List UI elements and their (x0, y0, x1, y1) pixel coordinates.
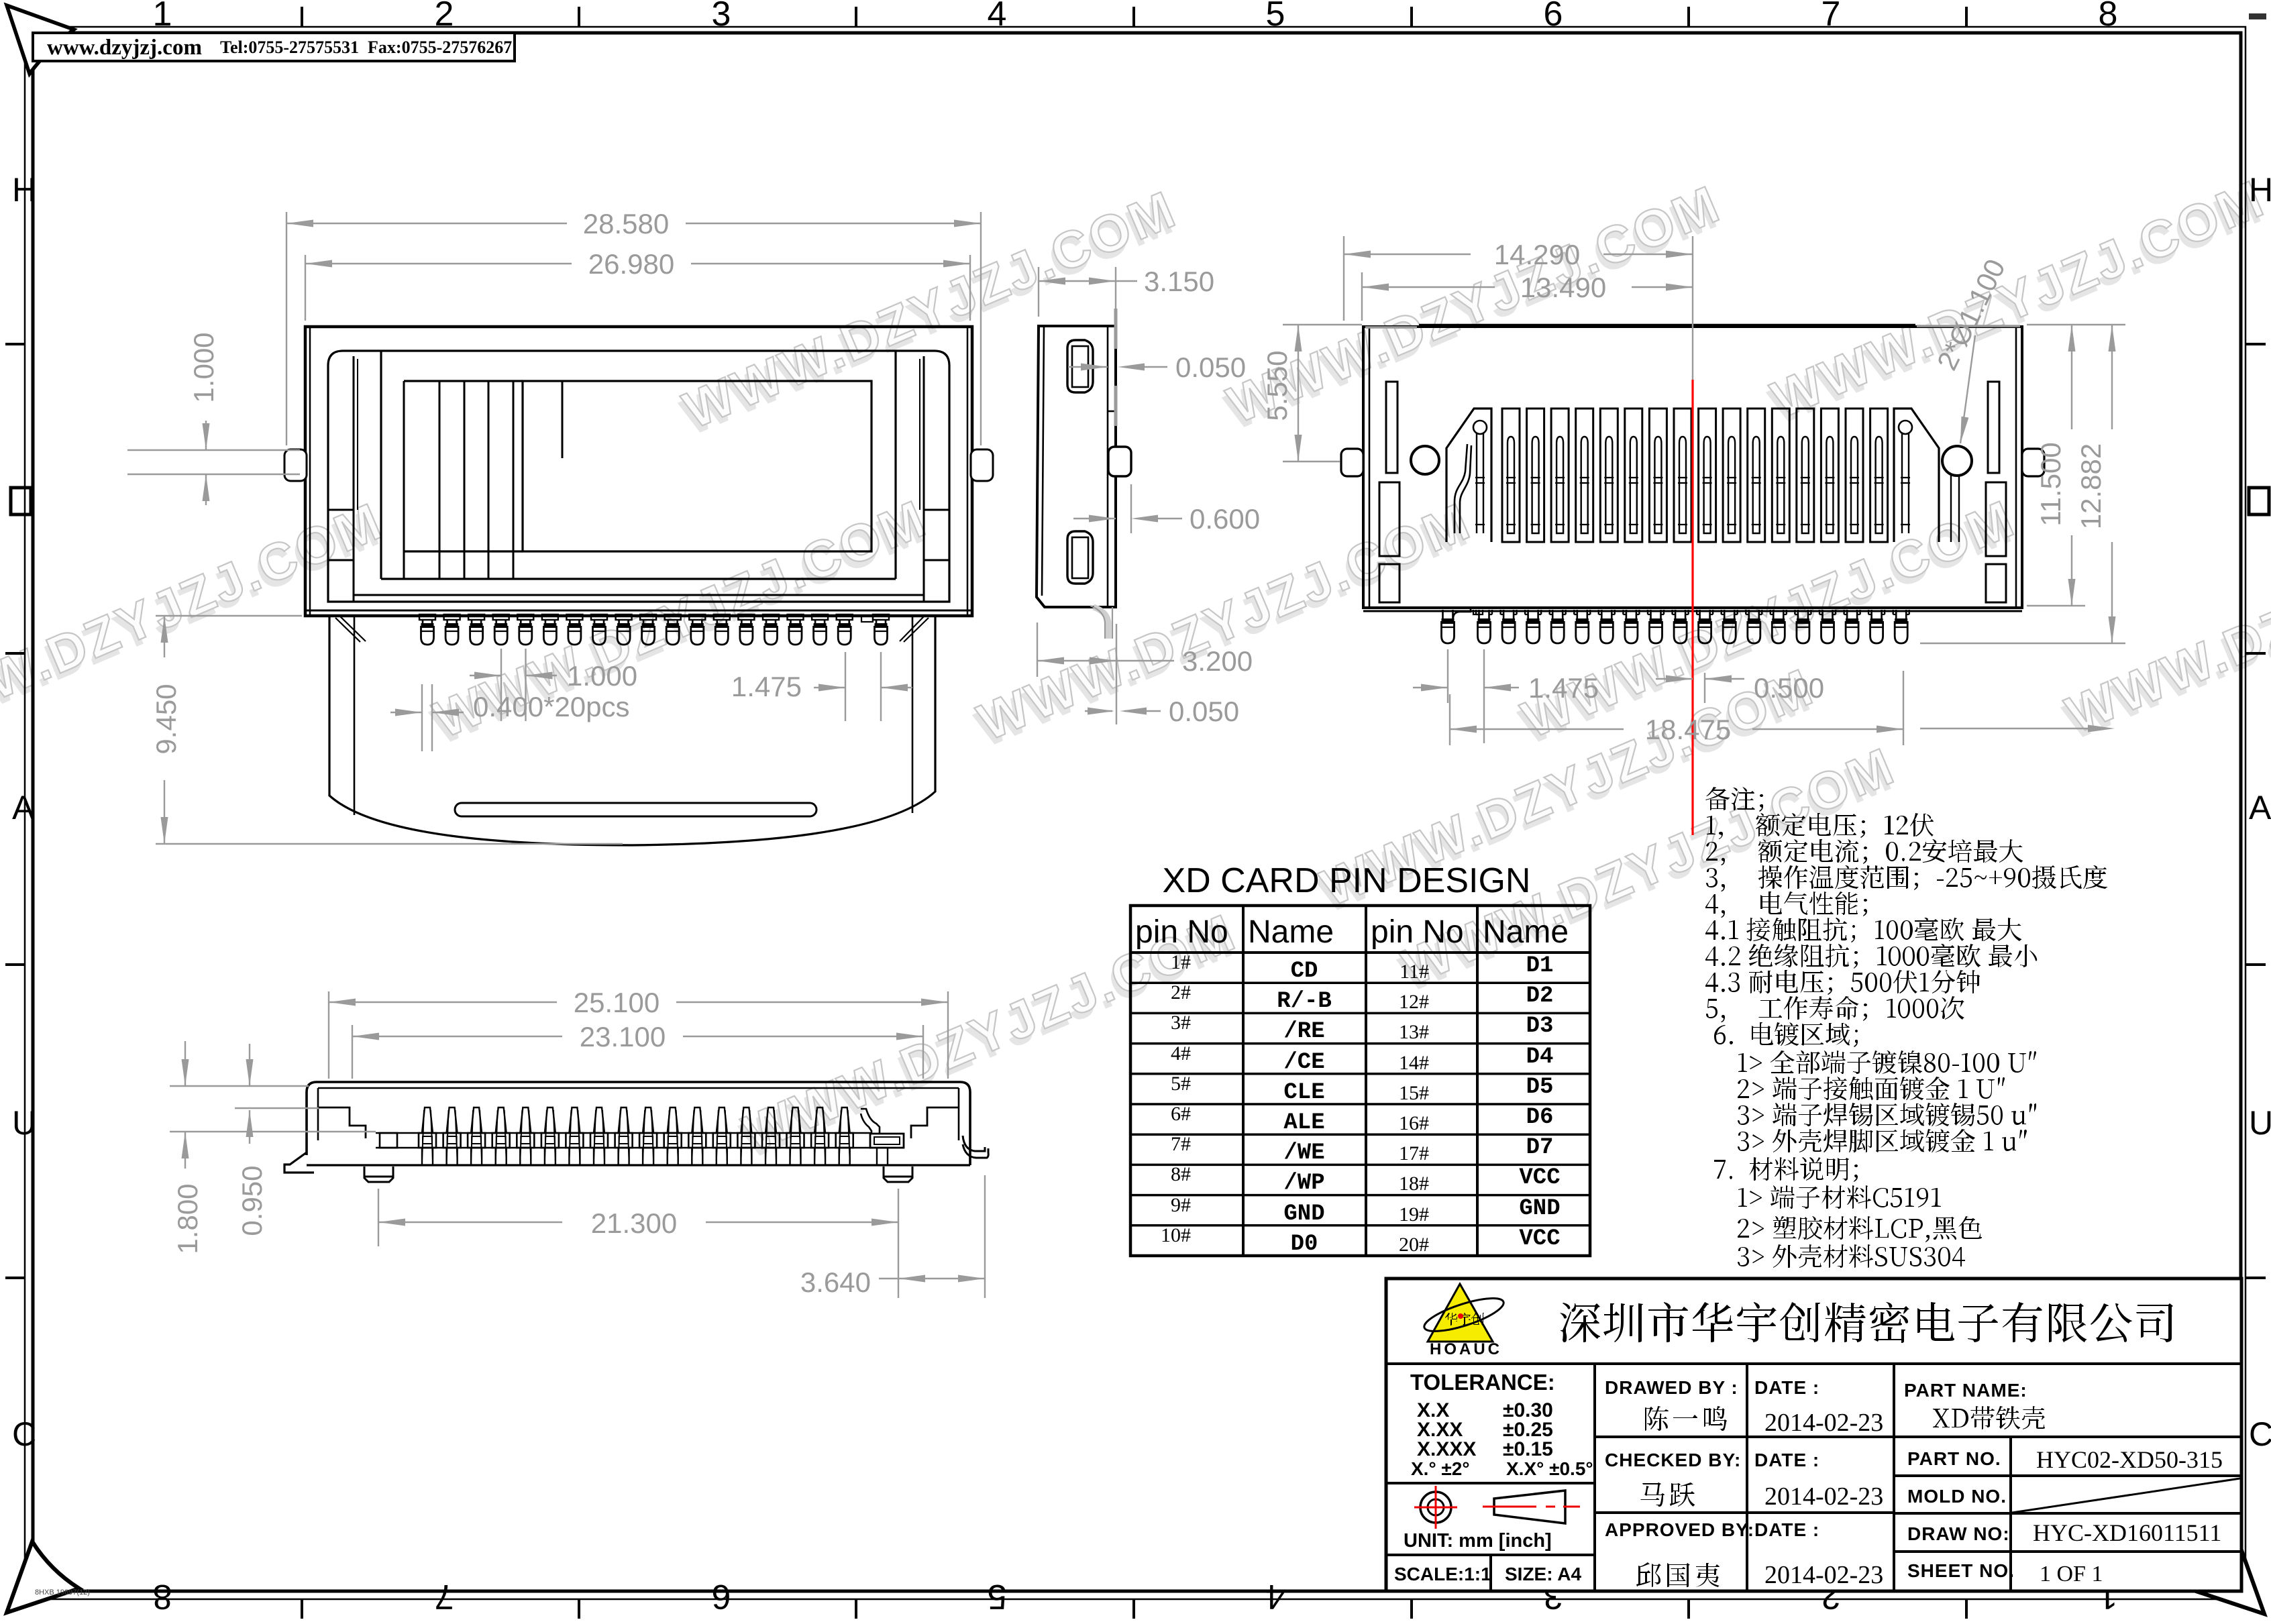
svg-text:3.640: 3.640 (800, 1266, 871, 1298)
svg-text:UNIT: mm [inch]: UNIT: mm [inch] (1404, 1530, 1552, 1552)
svg-text:www.dzyjzj.com: www.dzyjzj.com (47, 36, 202, 60)
svg-text:U: U (2249, 1104, 2271, 1142)
svg-text:APPROVED BY:: APPROVED BY: (1605, 1519, 1754, 1540)
svg-text:23.100: 23.100 (580, 1021, 666, 1052)
svg-text:D7: D7 (1526, 1135, 1554, 1160)
svg-text:7: 7 (1821, 0, 1841, 34)
svg-text:C: C (12, 1415, 36, 1453)
svg-text:1#: 1# (1171, 951, 1191, 973)
svg-text:18#: 18# (1399, 1173, 1429, 1195)
svg-text:2014-02-23: 2014-02-23 (1764, 1482, 1883, 1511)
svg-text:HYC-XD16011511: HYC-XD16011511 (2033, 1519, 2221, 1546)
svg-text:PART NAME:: PART NAME: (1904, 1380, 2027, 1401)
svg-text:2: 2 (435, 0, 454, 34)
svg-text:D6: D6 (1526, 1105, 1554, 1130)
svg-text:0.500: 0.500 (1754, 672, 1824, 704)
svg-text:A: A (2249, 789, 2271, 826)
svg-text:D0: D0 (1291, 1232, 1318, 1257)
svg-text:GND: GND (1283, 1201, 1324, 1227)
svg-text:GND: GND (1519, 1196, 1560, 1222)
svg-text:U: U (12, 1104, 36, 1142)
svg-text:10#: 10# (1161, 1224, 1191, 1246)
svg-text:DATE :: DATE : (1754, 1377, 1819, 1398)
svg-text:PART NO.: PART NO. (1907, 1448, 2001, 1469)
svg-text:TOLERANCE:: TOLERANCE: (1410, 1370, 1555, 1395)
svg-text:8HXB 19897(12): 8HXB 19897(12) (35, 1588, 90, 1596)
svg-text:/WE: /WE (1283, 1140, 1324, 1166)
svg-text:pin No: pin No (1371, 914, 1464, 950)
svg-text:8#: 8# (1171, 1163, 1191, 1185)
svg-text:5: 5 (1266, 0, 1285, 34)
svg-text:25.100: 25.100 (574, 987, 659, 1018)
svg-text:DATE :: DATE : (1754, 1450, 1819, 1470)
svg-text:6: 6 (712, 1577, 731, 1616)
svg-text:C: C (2249, 1415, 2271, 1453)
svg-text:21.300: 21.300 (591, 1207, 677, 1239)
svg-text:4: 4 (988, 0, 1007, 34)
svg-text:H: H (2249, 171, 2271, 209)
svg-text:D1: D1 (1526, 953, 1554, 979)
svg-text:ALE: ALE (1283, 1110, 1324, 1136)
svg-text:X.X° ±0.5°: X.X° ±0.5° (1506, 1458, 1593, 1479)
svg-text:12#: 12# (1399, 991, 1429, 1013)
svg-text:pin No: pin No (1135, 914, 1228, 950)
svg-text:17#: 17# (1399, 1142, 1429, 1165)
svg-text:13#: 13# (1399, 1021, 1429, 1043)
svg-text:6: 6 (1544, 0, 1563, 34)
svg-text:1.000: 1.000 (567, 660, 637, 692)
svg-text:2014-02-23: 2014-02-23 (1764, 1409, 1883, 1437)
svg-text:16#: 16# (1399, 1112, 1429, 1134)
svg-text:28.580: 28.580 (583, 208, 669, 239)
svg-text:H: H (12, 171, 36, 209)
svg-text:7: 7 (435, 1577, 454, 1616)
svg-text:1.475: 1.475 (731, 671, 802, 702)
svg-text:VCC: VCC (1519, 1226, 1560, 1252)
svg-text:0.050: 0.050 (1175, 351, 1246, 383)
svg-text:D3: D3 (1526, 1014, 1554, 1039)
svg-text:HYC02-XD50-315: HYC02-XD50-315 (2036, 1446, 2223, 1473)
svg-text:5.550: 5.550 (1261, 350, 1293, 421)
svg-text:26.980: 26.980 (588, 248, 674, 280)
svg-text:3#: 3# (1171, 1012, 1191, 1034)
svg-text:8: 8 (153, 1577, 172, 1616)
svg-text:14#: 14# (1399, 1052, 1429, 1074)
svg-text:0.600: 0.600 (1190, 503, 1260, 535)
svg-text:DRAW NO:: DRAW NO: (1907, 1523, 2010, 1544)
svg-text:12.882: 12.882 (2075, 443, 2107, 529)
svg-text:7#: 7# (1171, 1133, 1191, 1155)
svg-text:5: 5 (988, 1577, 1007, 1616)
svg-text:4#: 4# (1171, 1042, 1191, 1065)
svg-text:SIZE: A4: SIZE: A4 (1505, 1564, 1582, 1584)
svg-text:XD CARD PIN DESIGN: XD CARD PIN DESIGN (1163, 861, 1531, 900)
svg-text:X.° ±2°: X.° ±2° (1411, 1458, 1470, 1479)
svg-text:3.200: 3.200 (1182, 645, 1253, 677)
svg-text:1: 1 (153, 0, 172, 34)
svg-text:15#: 15# (1399, 1082, 1429, 1104)
svg-text:2#: 2# (1171, 981, 1191, 1004)
svg-text:CLE: CLE (1283, 1080, 1324, 1105)
svg-text:1.475: 1.475 (1528, 672, 1599, 704)
svg-text:5#: 5# (1171, 1073, 1191, 1095)
svg-text:1 OF 1: 1 OF 1 (2040, 1562, 2103, 1586)
svg-text:Name: Name (1483, 914, 1569, 950)
svg-text:3.150: 3.150 (1144, 266, 1214, 297)
svg-text:Tel:0755-27575531 Fax:0755-27: Tel:0755-27575531 Fax:0755-27576267 (220, 38, 512, 57)
svg-text:2014-02-23: 2014-02-23 (1764, 1561, 1883, 1589)
svg-text:1.000: 1.000 (188, 332, 219, 402)
svg-text:0.950: 0.950 (236, 1165, 268, 1236)
svg-text:18.475: 18.475 (1645, 714, 1731, 745)
svg-text:/WP: /WP (1283, 1171, 1324, 1196)
svg-text:MOLD NO.: MOLD NO. (1907, 1486, 2007, 1507)
svg-text:Name: Name (1248, 914, 1334, 950)
svg-text:0.400*20pcs: 0.400*20pcs (473, 691, 630, 722)
svg-text:11.500: 11.500 (2035, 442, 2066, 526)
svg-text:4: 4 (1266, 1577, 1285, 1616)
svg-text:CD: CD (1291, 959, 1318, 984)
svg-text:14.290: 14.290 (1494, 239, 1580, 270)
svg-text:11#: 11# (1399, 961, 1429, 983)
svg-text:A: A (12, 789, 35, 826)
svg-text:9.450: 9.450 (150, 684, 182, 754)
svg-text:SCALE:1:1: SCALE:1:1 (1394, 1564, 1491, 1584)
svg-text:/CE: /CE (1283, 1050, 1324, 1075)
svg-text:HOAUC: HOAUC (1430, 1340, 1502, 1358)
svg-text:0.050: 0.050 (1169, 696, 1239, 727)
svg-text:8: 8 (2099, 0, 2118, 34)
svg-text:D2: D2 (1526, 983, 1554, 1009)
svg-text:6#: 6# (1171, 1103, 1191, 1125)
svg-text:SHEET NO.: SHEET NO. (1907, 1560, 2015, 1581)
svg-text:X.XXX: X.XXX (1417, 1438, 1476, 1460)
svg-text:±0.15: ±0.15 (1503, 1438, 1553, 1460)
svg-text:R/-B: R/-B (1277, 989, 1332, 1014)
svg-text:13.490: 13.490 (1520, 272, 1606, 303)
svg-text:20#: 20# (1399, 1234, 1429, 1256)
svg-text:CHECKED BY:: CHECKED BY: (1605, 1450, 1741, 1470)
svg-text:VCC: VCC (1519, 1165, 1560, 1191)
svg-text:D4: D4 (1526, 1044, 1554, 1070)
svg-text:9#: 9# (1171, 1194, 1191, 1216)
svg-text:DATE :: DATE : (1754, 1519, 1819, 1540)
svg-text:/RE: /RE (1283, 1019, 1324, 1044)
svg-text:3: 3 (712, 0, 731, 34)
svg-text:19#: 19# (1399, 1203, 1429, 1226)
svg-text:D5: D5 (1526, 1075, 1554, 1100)
svg-text:DRAWED BY :: DRAWED BY : (1605, 1377, 1738, 1398)
svg-text:1.800: 1.800 (172, 1183, 203, 1254)
